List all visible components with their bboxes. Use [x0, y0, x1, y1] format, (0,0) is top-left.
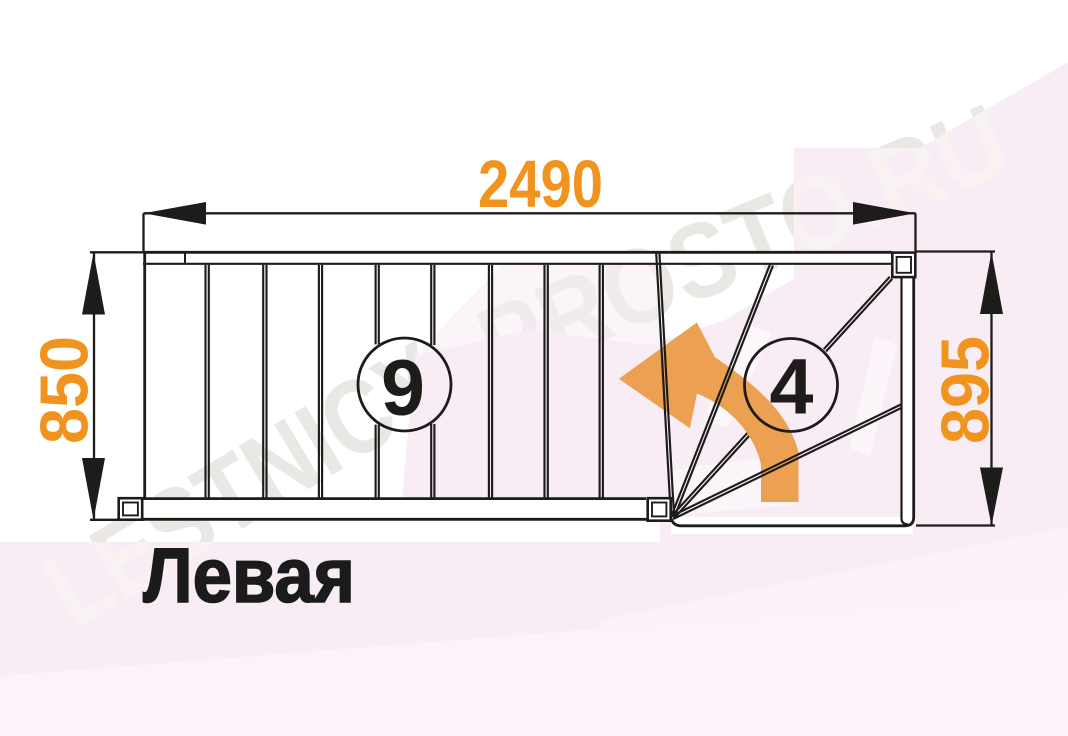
svg-text:Левая: Левая: [143, 533, 355, 619]
svg-text:4: 4: [770, 342, 814, 431]
svg-text:895: 895: [928, 336, 1004, 444]
svg-text:2490: 2490: [478, 147, 603, 222]
svg-text:850: 850: [27, 336, 103, 444]
svg-text:9: 9: [381, 343, 425, 432]
